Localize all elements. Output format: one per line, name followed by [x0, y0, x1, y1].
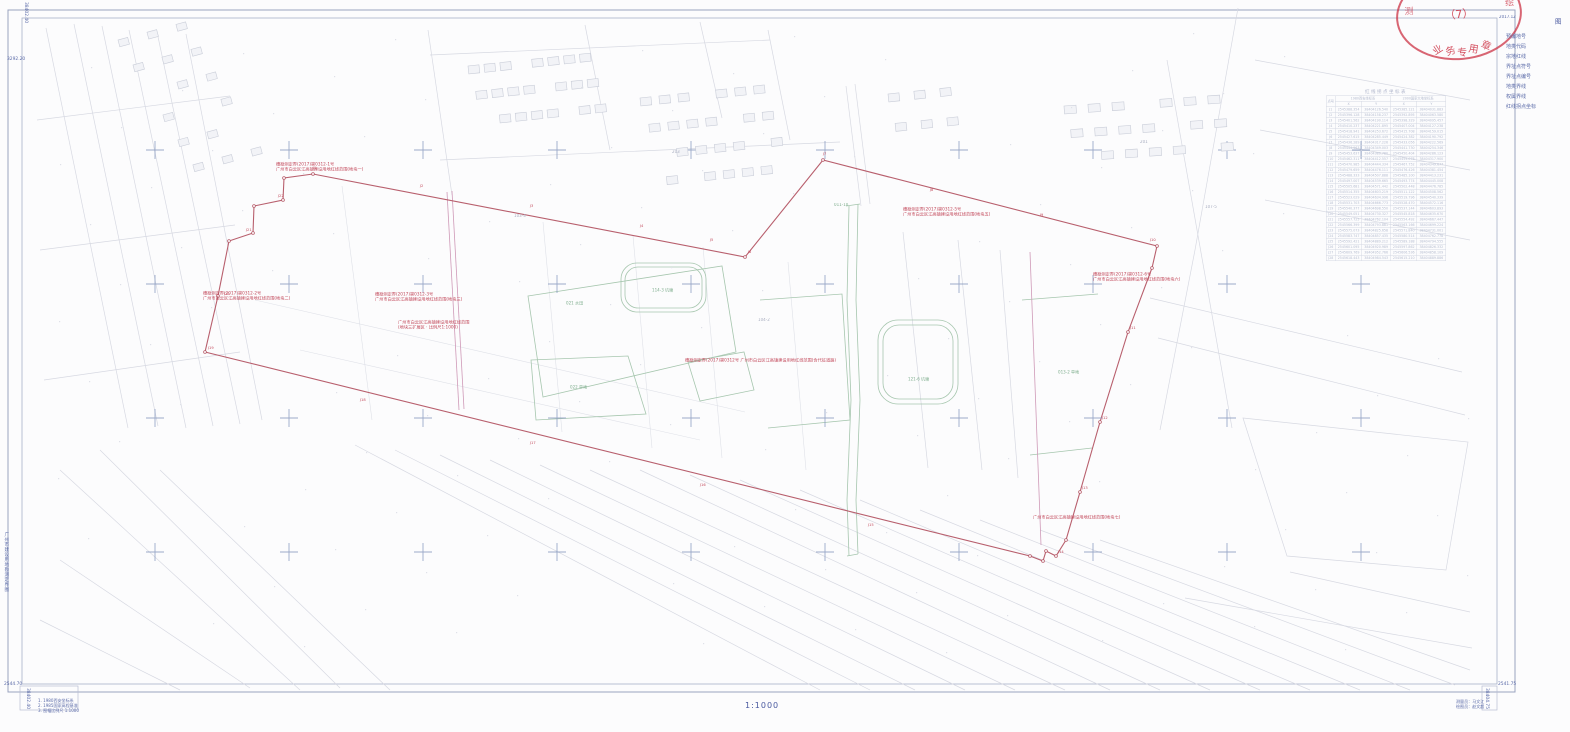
boundary-point-label: J11 — [1130, 326, 1136, 330]
boundary-point-label: J4 — [640, 224, 643, 228]
red-annotation-line: (地块三扩展区 · 比例尺1:1000) — [398, 325, 469, 330]
boundary-point-label: J6 — [748, 250, 751, 254]
boundary-point-label: J21 — [246, 228, 252, 232]
boundary-point-label: J8 — [930, 188, 933, 192]
boundary-point-label: J1 — [313, 166, 316, 170]
red-annotation-line: 广州市白云区江高镇建设用地红线范围(地块二) — [203, 296, 290, 301]
red-annotation: 穗勘测定界(2017)第0312-3号广州市白云区江高镇建设用地红线范围(地块三… — [375, 292, 462, 302]
red-annotation: 穗勘测定界(2017)第0312-2号广州市白云区江高镇建设用地红线范围(地块二… — [203, 291, 290, 301]
landtype-label: 103-4 — [514, 214, 526, 219]
label-overlay: 穗勘测定界(2017)第0312-1号广州市白云区江高镇建设用地红线范围(地块一… — [0, 0, 1570, 726]
landtype-label: 203 — [672, 150, 680, 155]
red-annotation-line: 广州市白云区江高镇建设用地红线范围(地块五) — [903, 212, 990, 217]
landtype-label: 121-6 坑塘 — [908, 376, 929, 382]
boundary-point-label: J20 — [224, 292, 230, 296]
boundary-point-label: J18 — [360, 398, 366, 402]
boundary-point-label: J9 — [1040, 213, 1043, 217]
boundary-point-label: J17 — [530, 441, 536, 445]
landtype-label: 104-2 — [758, 318, 770, 323]
boundary-point-label: J16 — [700, 483, 706, 487]
landtype-label: 201 — [1140, 140, 1148, 145]
red-annotation: 穗勘测定界(2017)第0312-5号广州市白云区江高镇建设用地红线范围(地块五… — [903, 207, 990, 217]
boundary-point-label: J13 — [1082, 486, 1088, 490]
boundary-point-label: J5 — [710, 238, 713, 242]
red-annotation-line: 广州市白云区江高镇建设用地红线范围(地块三) — [375, 297, 462, 302]
red-annotation-line: 穗勘测定界(2017)第0312号 广州市白云区江高镇建设用地红线范围(含代征道… — [685, 358, 836, 363]
red-annotation: 穗勘测定界(2017)第0312-1号广州市白云区江高镇建设用地红线范围(地块一… — [276, 162, 363, 172]
boundary-point-label: J14 — [1058, 550, 1064, 554]
landtype-label: 022 旱地 — [570, 384, 587, 390]
landtype-label: 021 水田 — [566, 300, 583, 306]
red-annotation: 广州市白云区江高镇建设用地红线范围(地块三扩展区 · 比例尺1:1000) — [398, 320, 469, 330]
survey-map-page: （7） 业务专用章 测 绘 2017.12 图 例 预编地号1地类代码221宗地… — [0, 0, 1570, 726]
red-annotation-line: 广州市白云区江高镇建设用地红线范围(地块六) — [1093, 277, 1180, 282]
red-annotation: 穗勘测定界(2017)第0312号 广州市白云区江高镇建设用地红线范围(含代征道… — [685, 358, 836, 363]
boundary-point-label: J3 — [530, 204, 533, 208]
red-annotation-line: 广州市白云区江高镇建设用地红线范围(地块一) — [276, 167, 363, 172]
landtype-label: 011-10 — [834, 203, 848, 208]
landtype-label: 114-3 坑塘 — [652, 287, 673, 293]
red-annotation: 广州市白云区江高镇建设用地红线范围(地块七) — [1033, 515, 1120, 520]
boundary-point-label: J2 — [420, 184, 423, 188]
boundary-point-label: J19 — [208, 346, 214, 350]
red-annotation: 穗勘测定界(2017)第0312-6号广州市白云区江高镇建设用地红线范围(地块六… — [1093, 272, 1180, 282]
red-annotation-line: 广州市白云区江高镇建设用地红线范围(地块七) — [1033, 515, 1120, 520]
boundary-point-label: J22 — [278, 194, 284, 198]
landtype-label: 107-5 — [1205, 205, 1217, 210]
boundary-point-label: J15 — [868, 523, 874, 527]
boundary-point-label: J7 — [823, 152, 826, 156]
landtype-label: 013-2 旱地 — [1058, 369, 1079, 375]
boundary-point-label: J10 — [1150, 238, 1156, 242]
boundary-point-label: J12 — [1102, 416, 1108, 420]
